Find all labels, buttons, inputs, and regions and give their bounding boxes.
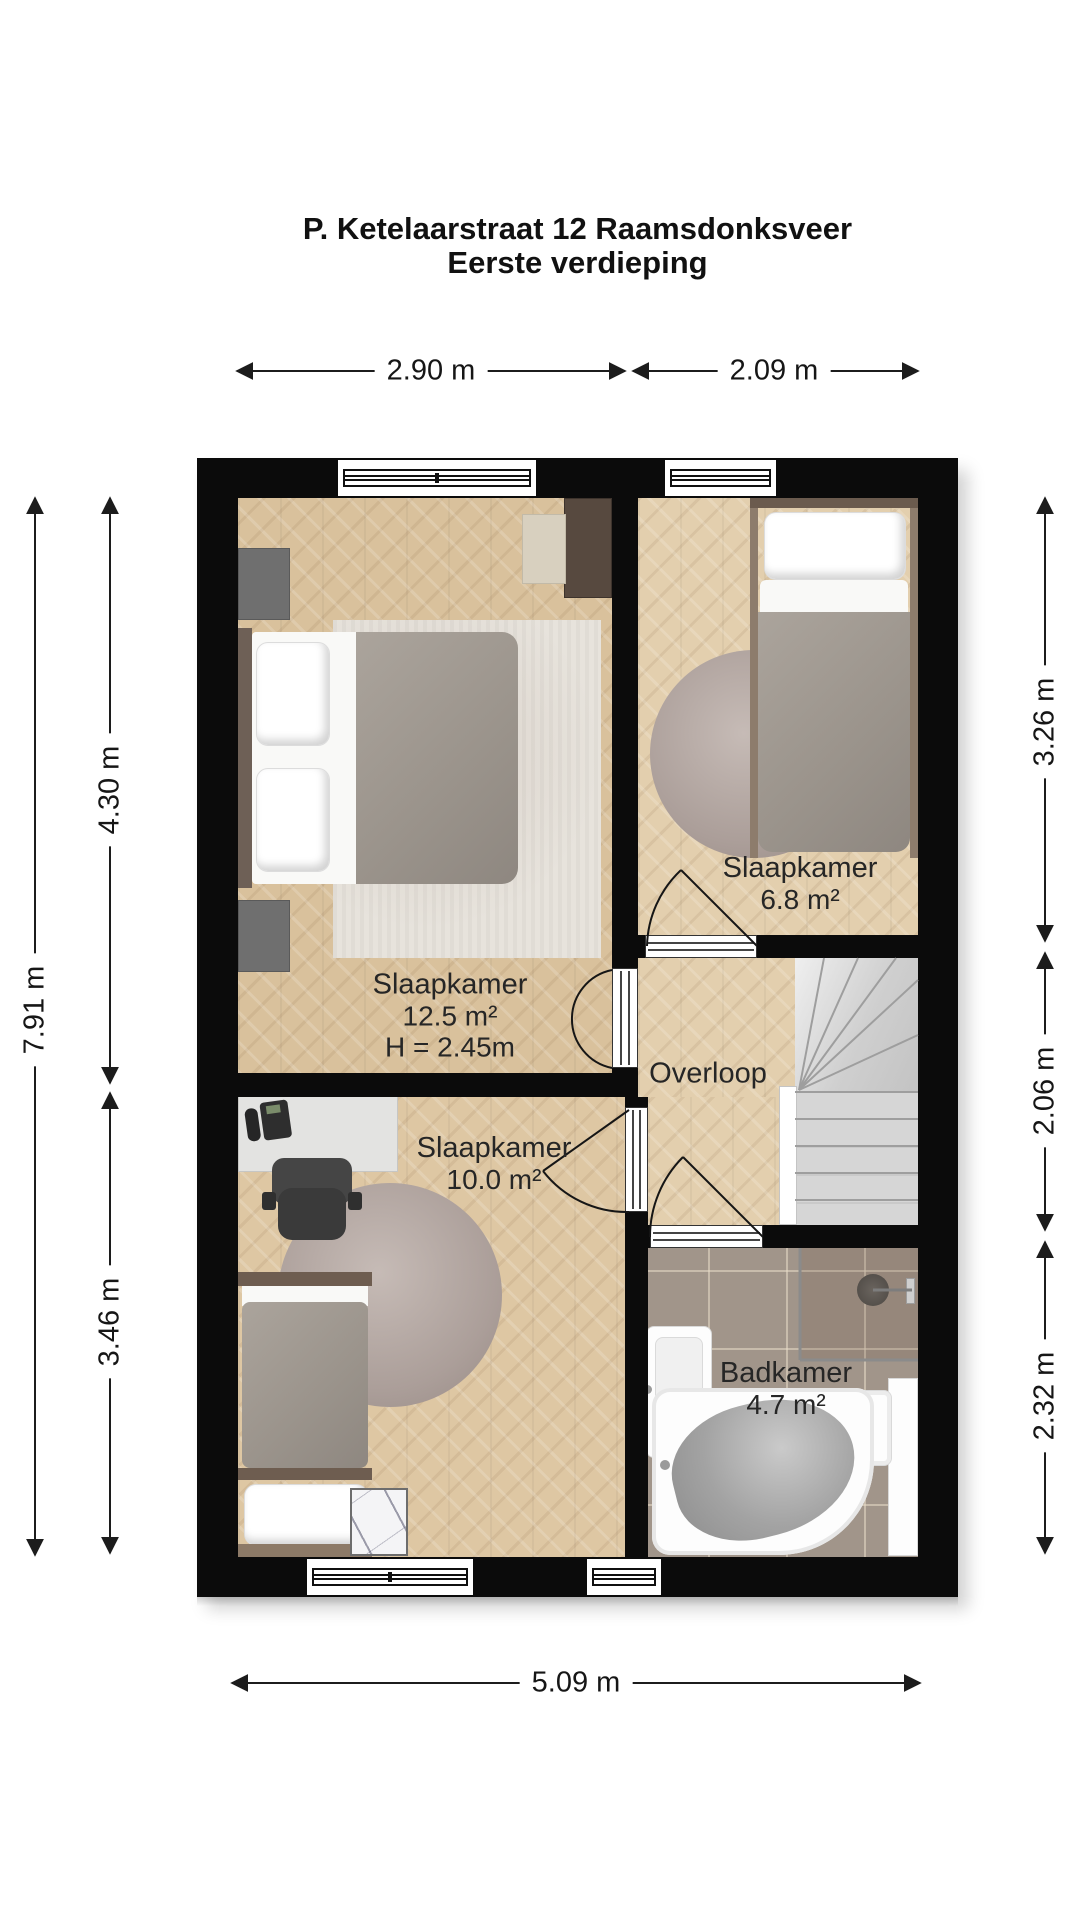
wall-divider-bedrooms-upper [612, 498, 638, 968]
shower-drain [857, 1274, 889, 1306]
room-area: 10.0 m² [417, 1164, 572, 1195]
wall-exterior-right [918, 458, 958, 1597]
window-mullion [388, 1572, 392, 1582]
double-bed-pillow-top [256, 642, 330, 746]
single-bed-right-rail-right [910, 508, 918, 858]
office-chair [262, 1158, 362, 1244]
desk-phone [243, 1097, 295, 1147]
plan-bottom-shade [197, 1597, 958, 1606]
wall-bedroom-large-lower [238, 1073, 628, 1097]
shower-handle [906, 1278, 915, 1304]
room-label-bedroom-lower: Slaapkamer 10.0 m² [417, 1133, 572, 1195]
dim-label-top-left: 2.90 m [375, 355, 488, 388]
room-area: 4.7 m² [720, 1389, 852, 1420]
stairs-straight [795, 1092, 918, 1225]
single-bed-right-rail-left [750, 508, 758, 858]
stairs-railing [779, 1086, 797, 1225]
room-name: Badkamer [720, 1358, 852, 1389]
dim-label-left-upper: 4.30 m [94, 734, 127, 847]
double-bed-pillow-bottom [256, 768, 330, 872]
room-label-landing: Overloop [649, 1059, 767, 1090]
window-bottom-bedroom-lower [305, 1557, 475, 1597]
wall-bedroom-right-landing [757, 935, 918, 958]
single-bed-right-duvet [758, 612, 910, 852]
double-bed-headboard [238, 628, 252, 888]
wall-bathroom-jamb-left [625, 1225, 650, 1248]
window-mullion [435, 473, 439, 483]
window-glass [592, 1568, 656, 1586]
room-name: Slaapkamer [723, 853, 878, 884]
office-chair-armrest-right [348, 1192, 362, 1210]
door-threshold-bedroom-lower [625, 1107, 648, 1212]
room-area: 12.5 m² [373, 1001, 528, 1032]
stool-pad [522, 514, 566, 584]
bathtub-faucet [660, 1460, 670, 1470]
room-name: Slaapkamer [417, 1133, 572, 1164]
room-label-bedroom-right: Slaapkamer 6.8 m² [723, 853, 878, 915]
dim-label-left-lower: 3.46 m [94, 1266, 127, 1379]
floorplan-page: P. Ketelaarstraat 12 Raamsdonksveer Eers… [0, 0, 1080, 1920]
window-glass [670, 469, 771, 487]
page-title: P. Ketelaarstraat 12 Raamsdonksveer Eers… [197, 212, 958, 280]
wall-landing-bathroom [763, 1225, 918, 1248]
stairs-winders [795, 958, 918, 1092]
shower-area [800, 1248, 918, 1360]
window-bottom-bathroom [585, 1557, 663, 1597]
dim-label-right-lower: 2.32 m [1029, 1340, 1062, 1453]
single-bed-right [750, 494, 918, 858]
dim-label-right-middle: 2.06 m [1029, 1035, 1062, 1148]
room-label-bathroom: Badkamer 4.7 m² [720, 1358, 852, 1420]
wall-bedroom-lower-bathroom [625, 1212, 648, 1557]
wall-bedroom-right-jamb-left [638, 935, 645, 958]
dim-label-bottom: 5.09 m [520, 1667, 633, 1700]
window-glass [312, 1568, 468, 1586]
toilet-cistern [888, 1378, 918, 1556]
room-name: Overloop [649, 1059, 767, 1090]
wall-exterior-top [197, 458, 958, 498]
single-bed-lower-rail-top [238, 1272, 372, 1286]
dim-label-right-upper: 3.26 m [1029, 666, 1062, 779]
window-glass [343, 469, 531, 487]
door-threshold-bathroom [650, 1225, 763, 1248]
room-area: 6.8 m² [723, 884, 878, 915]
floor-landing-lower [648, 1097, 795, 1225]
nightstand-top [238, 548, 290, 620]
wall-landing-jamb-top [625, 1097, 648, 1107]
dim-label-left-total: 7.91 m [19, 954, 52, 1067]
page-title-floor: Eerste verdieping [197, 246, 958, 280]
side-table-marble [350, 1488, 408, 1556]
wall-exterior-left [197, 458, 238, 1597]
door-threshold-bedroom-large [612, 968, 638, 1068]
double-bed-duvet [356, 632, 518, 884]
single-bed-right-pillow [764, 512, 906, 580]
window-top-bedroom-right [663, 458, 778, 498]
window-top-bedroom-large [336, 458, 538, 498]
office-chair-armrest-left [262, 1192, 276, 1210]
dresser-cabinet [564, 498, 612, 598]
nightstand-bottom [238, 900, 290, 972]
office-chair-seat [278, 1188, 346, 1240]
page-title-address: P. Ketelaarstraat 12 Raamsdonksveer [197, 212, 958, 246]
door-threshold-bedroom-right [645, 935, 757, 958]
double-bed [238, 628, 518, 888]
single-bed-lower-duvet [242, 1302, 368, 1468]
dim-label-top-right: 2.09 m [718, 355, 831, 388]
single-bed-lower-rail-mid [238, 1468, 372, 1480]
room-label-bedroom-large: Slaapkamer 12.5 m² H = 2.45m [373, 970, 528, 1063]
room-name: Slaapkamer [373, 970, 528, 1001]
room-ceiling-height: H = 2.45m [373, 1032, 528, 1063]
